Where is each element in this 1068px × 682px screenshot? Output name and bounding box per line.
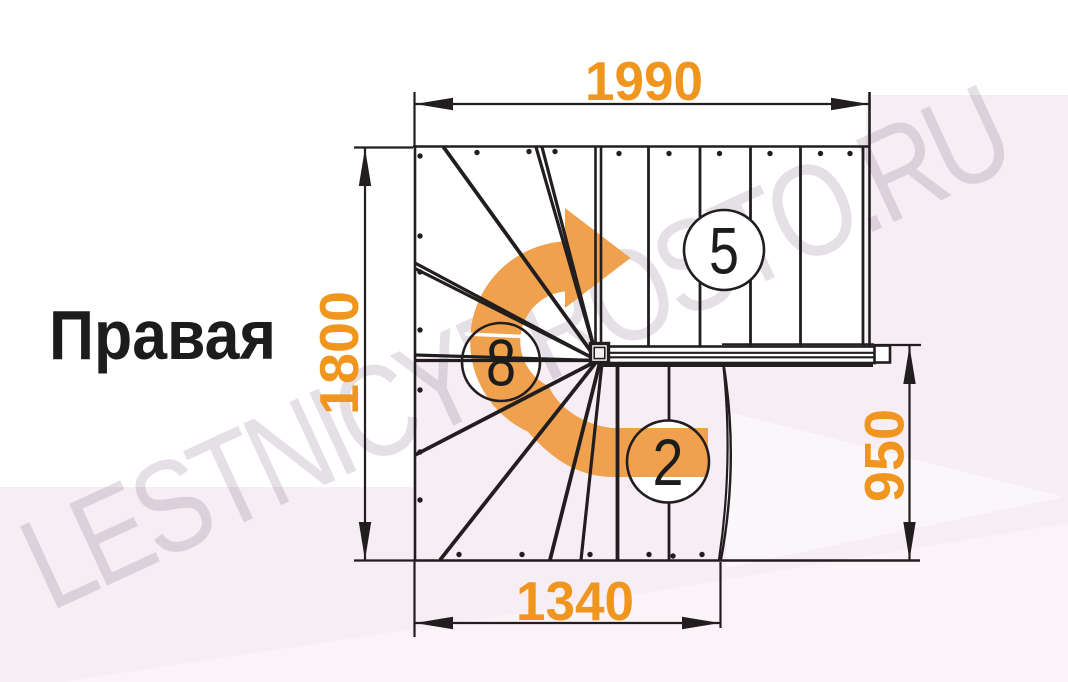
- svg-text:950: 950: [853, 409, 916, 502]
- svg-text:2: 2: [653, 425, 684, 499]
- svg-text:1800: 1800: [308, 291, 370, 415]
- svg-text:8: 8: [486, 326, 516, 400]
- svg-text:Правая: Правая: [49, 296, 276, 374]
- svg-text:1990: 1990: [585, 50, 703, 112]
- svg-text:1340: 1340: [516, 570, 634, 632]
- svg-text:5: 5: [709, 214, 739, 288]
